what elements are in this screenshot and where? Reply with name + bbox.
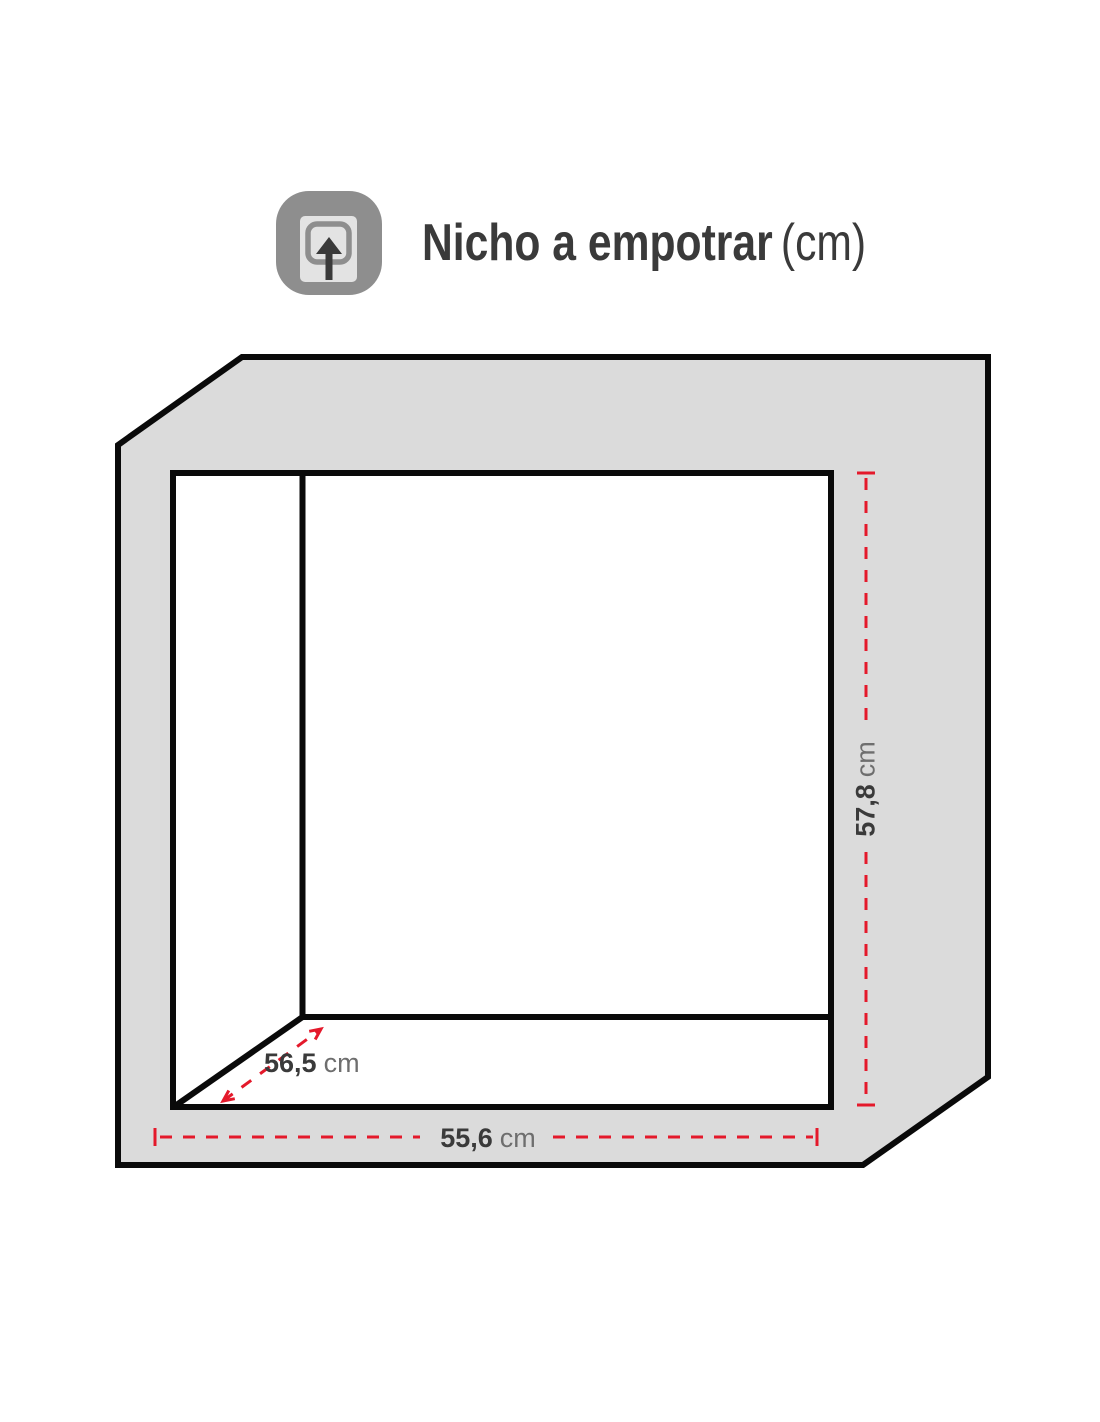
page: Nicho a empotrar(cm) 57,8cm 56,5cm 55, bbox=[0, 0, 1100, 1422]
depth-dimension-value: 56,5 bbox=[264, 1048, 317, 1078]
height-dimension-label: 57,8cm bbox=[853, 741, 880, 837]
height-dimension-unit: cm bbox=[851, 741, 881, 777]
depth-dimension-label: 56,5cm bbox=[264, 1050, 360, 1077]
height-dimension-value: 57,8 bbox=[851, 784, 881, 837]
width-dimension-value: 55,6 bbox=[440, 1123, 493, 1153]
width-dimension-unit: cm bbox=[500, 1123, 536, 1153]
width-dimension-label: 55,6cm bbox=[440, 1125, 536, 1152]
niche-opening bbox=[173, 473, 831, 1107]
niche-diagram-svg bbox=[0, 0, 1100, 1422]
depth-dimension-unit: cm bbox=[324, 1048, 360, 1078]
